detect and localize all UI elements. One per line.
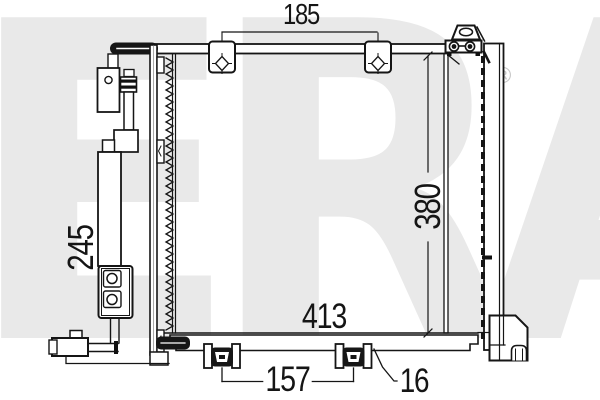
top-right-pipe-bracket	[446, 26, 485, 57]
drier-connector-block	[99, 266, 133, 318]
left-side-plate	[150, 45, 168, 365]
dimension-label-380: 380	[409, 174, 447, 240]
drier-bracket-plate	[98, 68, 120, 112]
dimension-label-413: 413	[291, 299, 357, 336]
mounting-tab-left	[209, 33, 235, 74]
mounting-tab-right	[365, 33, 391, 74]
leader-line-16	[374, 349, 397, 381]
dimension-label-185: 185	[268, 0, 334, 30]
mounting-foot-left	[204, 344, 240, 368]
condenser-line-art	[0, 0, 600, 400]
mounting-foot-right	[336, 344, 372, 368]
right-side-plate	[482, 44, 504, 351]
dimension-label-16: 16	[395, 364, 433, 400]
receiver-drier	[98, 68, 139, 343]
dimension-label-157: 157	[254, 362, 320, 399]
condenser-technical-drawing: ERA ®	[0, 0, 600, 400]
dimension-label-245: 245	[62, 215, 100, 281]
drier-tube	[98, 152, 121, 266]
